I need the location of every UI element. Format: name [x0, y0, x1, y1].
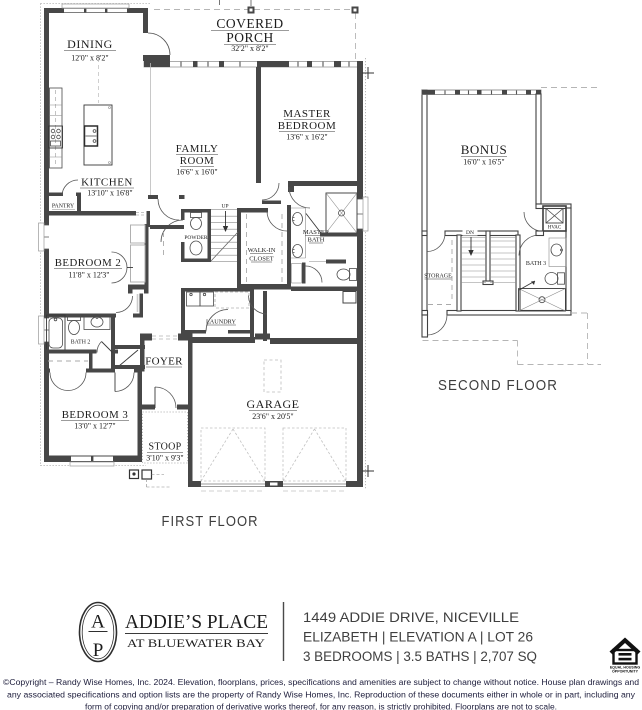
svg-text:KITCHEN: KITCHEN	[81, 177, 133, 189]
svg-text:ROOM: ROOM	[180, 155, 214, 167]
svg-text:16'6" x 16'0": 16'6" x 16'0"	[176, 168, 217, 177]
svg-text:3'10" x 9'3": 3'10" x 9'3"	[146, 454, 183, 463]
svg-text:13'0" x 12'7": 13'0" x 12'7"	[74, 422, 115, 431]
svg-text:©Copyright – Randy Wise Homes,: ©Copyright – Randy Wise Homes, Inc. 2024…	[3, 677, 639, 687]
svg-text:FAMILY: FAMILY	[176, 143, 219, 155]
svg-text:UP: UP	[221, 204, 228, 210]
svg-text:HVAC: HVAC	[548, 226, 562, 231]
svg-text:FOYER: FOYER	[145, 356, 183, 368]
svg-text:BEDROOM 2: BEDROOM 2	[55, 257, 122, 269]
svg-text:STORAGE: STORAGE	[424, 274, 452, 280]
svg-text:16'0" x 16'5": 16'0" x 16'5"	[463, 158, 504, 167]
svg-text:32'2" x 8'2": 32'2" x 8'2"	[231, 44, 268, 53]
svg-text:BATH 3: BATH 3	[526, 261, 546, 267]
svg-text:FIRST FLOOR: FIRST FLOOR	[162, 513, 259, 530]
svg-text:BEDROOM: BEDROOM	[278, 120, 337, 132]
svg-text:12'0" x 8'2": 12'0" x 8'2"	[71, 54, 108, 63]
svg-text:OPPORTUNITY: OPPORTUNITY	[612, 670, 639, 674]
svg-text:any associated specifications: any associated specifications and option…	[7, 690, 636, 700]
svg-text:form of copying and/or prepara: form of copying and/or preparation of de…	[85, 702, 557, 710]
svg-text:BATH 2: BATH 2	[71, 340, 91, 346]
svg-text:PANTRY: PANTRY	[52, 204, 75, 210]
svg-text:POWDER: POWDER	[184, 235, 208, 241]
svg-text:MASTER: MASTER	[283, 108, 331, 120]
svg-text:3 BEDROOMS | 3.5 BATHS | 2,707: 3 BEDROOMS | 3.5 BATHS | 2,707 SQ	[303, 649, 537, 665]
svg-text:13'6" x 16'2": 13'6" x 16'2"	[286, 133, 327, 142]
svg-text:LAUNDRY: LAUNDRY	[206, 319, 236, 326]
svg-text:A: A	[91, 612, 105, 633]
svg-text:1449 ADDIE DRIVE, NICEVILLE: 1449 ADDIE DRIVE, NICEVILLE	[303, 610, 519, 626]
svg-text:P: P	[93, 640, 104, 661]
svg-text:SECOND FLOOR: SECOND FLOOR	[438, 377, 558, 394]
svg-text:AT BLUEWATER BAY: AT BLUEWATER BAY	[127, 638, 266, 650]
svg-text:STOOP: STOOP	[149, 442, 182, 453]
svg-text:PORCH: PORCH	[226, 30, 274, 45]
svg-text:WALK-IN: WALK-IN	[248, 247, 276, 254]
svg-text:GARAGE: GARAGE	[247, 397, 300, 411]
svg-text:BATH: BATH	[308, 237, 325, 244]
svg-text:ELIZABETH | ELEVATION A | LOT: ELIZABETH | ELEVATION A | LOT 26	[303, 630, 533, 646]
svg-text:ADDIE’S PLACE: ADDIE’S PLACE	[125, 612, 268, 633]
svg-text:DINING: DINING	[67, 37, 113, 51]
svg-text:BEDROOM 3: BEDROOM 3	[62, 409, 129, 421]
svg-text:CLOSET: CLOSET	[249, 256, 274, 263]
svg-text:13'10" x 16'8": 13'10" x 16'8"	[87, 189, 132, 198]
svg-text:DN: DN	[466, 230, 474, 236]
svg-text:23'6" x 20'5": 23'6" x 20'5"	[252, 412, 293, 421]
svg-text:BONUS: BONUS	[461, 142, 508, 157]
svg-text:11'8" x 12'3": 11'8" x 12'3"	[68, 271, 109, 280]
svg-text:COVERED: COVERED	[216, 16, 283, 31]
